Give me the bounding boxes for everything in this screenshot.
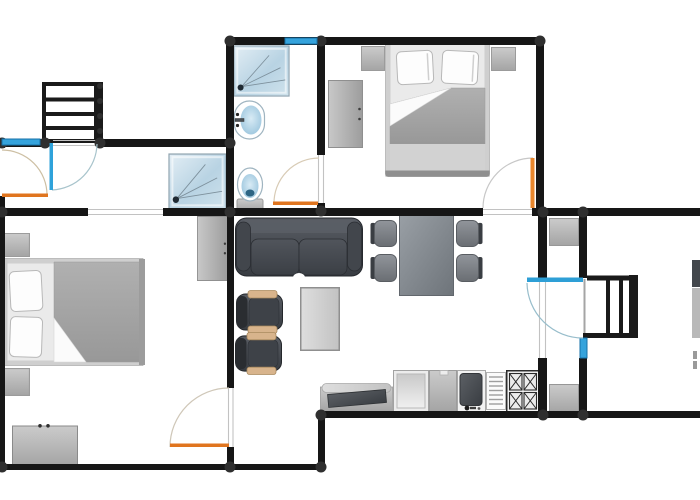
double-bed-top [386, 42, 490, 177]
wardrobe-left-room [197, 216, 227, 280]
wall-node [316, 206, 327, 217]
wall-node [225, 36, 236, 47]
nightstand-a [3, 233, 30, 256]
wall-node [316, 462, 327, 473]
bathroom-sink [235, 101, 265, 139]
cabinet-niche-bottom [550, 385, 579, 413]
wall-segment [532, 208, 700, 216]
wall-node [97, 83, 103, 89]
stove [507, 371, 540, 413]
kitchen-counter [321, 384, 393, 412]
wall-node [225, 138, 236, 149]
dining-chair-1 [371, 220, 397, 246]
wall-node [316, 410, 327, 421]
wall-segment [226, 37, 234, 216]
screenshot-root [0, 0, 700, 500]
wall-node [578, 410, 589, 421]
wall-node [535, 36, 546, 47]
dining-chair-3 [457, 220, 483, 246]
dish-drainer [487, 373, 506, 410]
staircase-entry [44, 82, 103, 143]
wall-segment [0, 196, 5, 470]
armchair-a [237, 291, 283, 334]
wall-node [225, 207, 236, 218]
nightstand-left [361, 47, 384, 71]
wall-node [97, 128, 103, 134]
cut-mark-b [693, 361, 697, 369]
cut-chair [692, 260, 700, 287]
entry-door-left-leaf [2, 194, 48, 198]
wall-segment [0, 464, 325, 470]
fridge [430, 371, 457, 412]
wall-segment [98, 139, 228, 147]
window-stair-room [580, 338, 587, 358]
wall-node [538, 410, 549, 421]
dining-table [400, 216, 454, 296]
wardrobe-bedroom [329, 81, 363, 148]
wall-segment [536, 37, 544, 216]
dresser [13, 424, 78, 466]
glass-door-right-leaf [527, 278, 583, 283]
window-bathroom [285, 38, 317, 44]
cut-mark-a [693, 351, 697, 359]
wall-node [225, 462, 236, 473]
wall-node [95, 138, 106, 149]
wall-segment [317, 43, 325, 155]
toilet [237, 168, 263, 211]
sofa [236, 218, 363, 282]
wall-segment [318, 411, 700, 418]
left-room-door-leaf [170, 444, 229, 448]
double-bed-left [3, 259, 146, 366]
shower-bathroom [234, 46, 289, 96]
wall-node [538, 207, 549, 218]
wall-segment [318, 413, 325, 470]
entry-door-top-leaf [50, 143, 54, 190]
wall-segment [227, 216, 234, 388]
cabinet-niche-top [550, 219, 579, 246]
dining-chair-4 [457, 255, 483, 282]
cut-table [692, 288, 700, 338]
armchair-b [236, 332, 282, 374]
kitchen-sink [458, 371, 486, 412]
bathroom-door-leaf [273, 202, 318, 206]
wall-segment [0, 208, 88, 216]
window-hall [2, 139, 40, 145]
coffee-table [301, 288, 340, 351]
dining-chair-2 [371, 255, 397, 282]
floor-plan [0, 0, 700, 500]
wall-segment [579, 216, 587, 278]
wall-node [40, 138, 51, 149]
wall-segment [226, 37, 543, 45]
wall-segment [538, 358, 547, 416]
wall-node [97, 98, 103, 104]
bedroom-door-leaf [531, 158, 535, 208]
nightstand-right [492, 47, 516, 70]
wall-segment [579, 358, 587, 416]
dishwasher [394, 371, 429, 412]
wall-segment [538, 216, 547, 278]
nightstand-b [3, 369, 30, 396]
wall-node [578, 207, 589, 218]
shower-hall [169, 154, 226, 209]
wall-node [97, 113, 103, 119]
